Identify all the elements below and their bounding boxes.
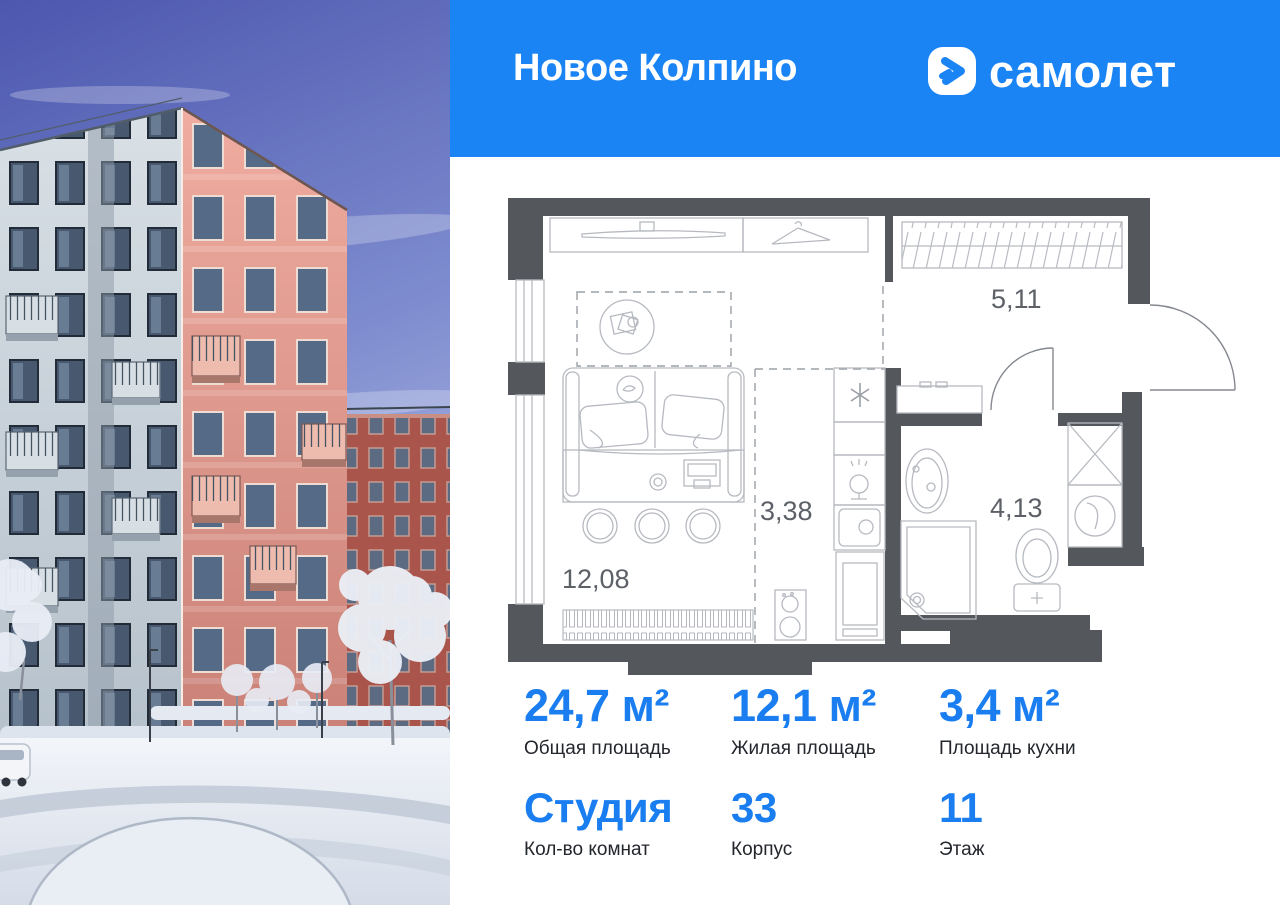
poufs	[583, 509, 720, 543]
wardrobe	[743, 218, 868, 252]
kitchen-units	[834, 368, 885, 640]
decor-plate	[617, 376, 643, 402]
project-title: Новое Колпино	[513, 47, 797, 90]
stat-kitchen-area: 3,4 м² Площадь кухни	[939, 682, 1076, 760]
stat-living-area-value: 12,1 м²	[731, 682, 876, 729]
hall-closet	[902, 222, 1122, 268]
car	[0, 744, 30, 787]
toilet	[1014, 529, 1060, 611]
floor-plan-drawing: 12,08 3,38 5,11 4,13	[505, 195, 1240, 685]
bathroom-door	[991, 348, 1053, 410]
room-area-kitchen: 3,38	[760, 496, 813, 526]
balcony	[250, 546, 296, 591]
stove	[775, 590, 806, 640]
stat-rooms: Студия Кол-во комнат	[524, 786, 672, 861]
room-area-hallway: 5,11	[991, 284, 1042, 314]
room-area-bathroom: 4,13	[990, 493, 1043, 523]
wall-shelf	[550, 218, 743, 252]
main-building	[0, 98, 347, 772]
stat-total-area-value: 24,7 м²	[524, 682, 671, 729]
stat-floor-label: Этаж	[939, 839, 984, 861]
balcony	[192, 336, 240, 383]
entrance-door	[1150, 305, 1235, 390]
stat-kitchen-area-label: Площадь кухни	[939, 738, 1076, 760]
balcony	[112, 362, 160, 405]
stat-building-label: Корпус	[731, 839, 792, 861]
bench-table	[563, 450, 744, 502]
balcony	[302, 424, 346, 467]
info-pane: Новое Колпино самолет	[450, 0, 1280, 905]
stat-floor-value: 11	[939, 786, 984, 830]
balcony	[6, 296, 58, 341]
complex-photo-illustration	[0, 0, 450, 905]
stat-living-area-label: Жилая площадь	[731, 738, 876, 760]
stat-kitchen-area-value: 3,4 м²	[939, 682, 1076, 729]
radiator-shelf	[563, 610, 753, 640]
hall-cabinet	[897, 382, 982, 413]
balcony	[112, 498, 160, 541]
header-bar: Новое Колпино самолет	[450, 0, 1280, 157]
complex-photo	[0, 0, 450, 905]
stat-floor: 11 Этаж	[939, 786, 984, 861]
stat-building: 33 Корпус	[731, 786, 792, 861]
room-area-living: 12,08	[562, 564, 630, 594]
round-table	[600, 300, 654, 354]
samolet-plane-icon	[928, 47, 976, 95]
bathroom-sink	[906, 449, 948, 513]
stat-rooms-value: Студия	[524, 786, 672, 830]
balcony	[6, 432, 58, 477]
stat-building-value: 33	[731, 786, 792, 830]
brand-logo: самолет	[928, 45, 1177, 97]
utility-closet	[1068, 423, 1122, 485]
apartment-listing-card[interactable]: Новое Колпино самолет	[0, 0, 1280, 905]
washing-machine	[1068, 485, 1122, 547]
floor-plan: 12,08 3,38 5,11 4,13	[505, 195, 1240, 685]
brand-name: самолет	[989, 49, 1177, 94]
stat-total-area-label: Общая площадь	[524, 738, 671, 760]
walls	[508, 198, 1150, 675]
balcony	[192, 476, 240, 523]
stat-living-area: 12,1 м² Жилая площадь	[731, 682, 876, 760]
window	[516, 280, 544, 604]
stat-total-area: 24,7 м² Общая площадь	[524, 682, 671, 760]
stat-rooms-label: Кол-во комнат	[524, 839, 672, 861]
shower	[901, 521, 976, 619]
